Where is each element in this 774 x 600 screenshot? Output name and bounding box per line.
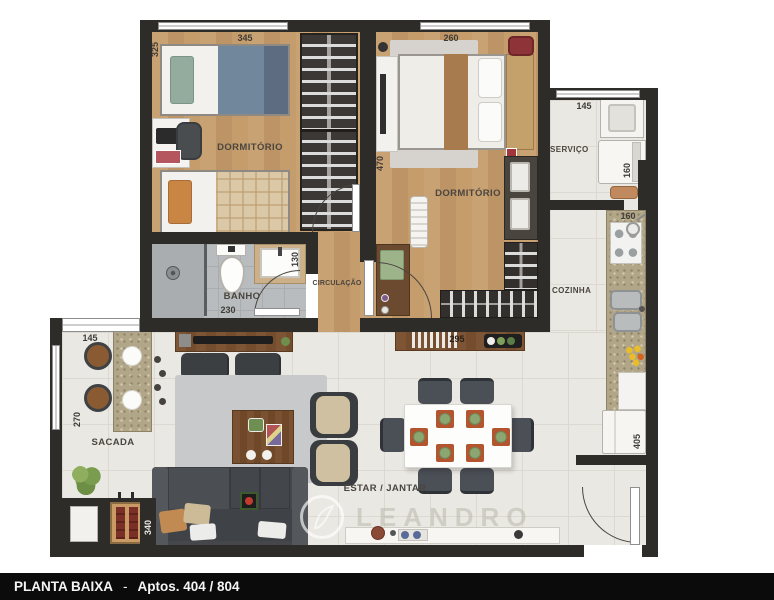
photo-frame-pink	[155, 150, 181, 164]
floor-plan-page: { "title_bar": { "name": "PLANTA BAIXA",…	[0, 0, 774, 600]
game-board-dot	[245, 497, 253, 505]
door-leaf-entry	[630, 487, 640, 545]
fridge-divider	[614, 411, 616, 453]
laundry-tank-basin	[608, 104, 636, 132]
tv-rack-plant	[281, 337, 290, 346]
dim-dormitorio-1-width: 345	[232, 33, 258, 43]
headboard	[506, 54, 534, 150]
room-label-dormitorio-1: DORMITÓRIO	[198, 141, 302, 153]
tray-plate-white	[487, 337, 495, 345]
room-label-servico: SERVIÇO	[550, 144, 594, 154]
bottle-4	[159, 398, 166, 405]
wall-dormitorio-2-bottom	[360, 318, 538, 332]
tray-plate-green-2	[507, 337, 515, 345]
dim-sacada-width: 145	[78, 333, 102, 343]
room-label-cozinha: COZINHA	[552, 285, 598, 295]
room-label-sacada: SACADA	[84, 437, 142, 448]
coffee-table-magazine	[266, 424, 282, 446]
fruit-bowl	[624, 344, 646, 366]
door-leaf-banho	[254, 308, 300, 316]
counter-appliance	[618, 372, 646, 410]
decor-ball-dark	[378, 42, 388, 52]
door-leaf-dormitorio-2	[364, 260, 374, 316]
stool-1	[84, 342, 112, 370]
bed-pillow-2	[478, 102, 502, 142]
sofa-pillow-white-1	[189, 523, 216, 541]
dim-servico-width: 145	[572, 101, 596, 111]
wardrobe-hangers-right	[504, 242, 538, 290]
tray-plate-green-1	[497, 337, 505, 345]
toilet-button	[228, 246, 235, 252]
duvet-blue	[218, 46, 264, 114]
laundry-basket	[610, 186, 638, 199]
sofa-pillow-white-2	[257, 521, 286, 539]
kitchen-sink-basin-2	[613, 312, 642, 332]
apartment-numbers: Aptos. 404 / 804	[138, 579, 240, 594]
bed-runner	[444, 54, 468, 150]
duvet-blue-fold	[264, 46, 288, 114]
wall-duct	[638, 160, 646, 210]
watermark-logo-icon	[300, 495, 344, 539]
dining-chair-left	[380, 418, 406, 452]
bench-plate-blue-1	[401, 531, 409, 539]
dining-chair-bottom-2	[460, 468, 494, 494]
wardrobe-box-2	[510, 198, 530, 230]
plate-6	[495, 431, 507, 443]
dining-chair-top-2	[460, 378, 494, 404]
duvet-plaid	[216, 172, 288, 232]
coffee-table-cup-1	[246, 450, 256, 460]
pouf-red	[508, 36, 534, 56]
tv-rack-box	[179, 334, 191, 347]
plate-3	[439, 447, 451, 459]
entry-threshold	[584, 545, 642, 557]
shower-area	[152, 244, 204, 318]
wall-bedroom-divider	[360, 32, 376, 262]
wardrobe-divider	[300, 129, 358, 132]
wall-kitchen-entry-stub	[576, 455, 646, 465]
dim-estar-height: 340	[143, 514, 153, 540]
sink-tap	[278, 247, 282, 256]
dim-cozinha-width: 160	[616, 211, 640, 221]
dim-banho-width: 230	[215, 305, 241, 315]
bar-plate-1	[122, 346, 142, 366]
plan-title: PLANTA BAIXA	[14, 579, 113, 594]
niche	[70, 506, 98, 542]
pillow-orange	[168, 180, 192, 224]
door-leaf-dormitorio-1	[352, 184, 360, 232]
kitchen-sink-basin-1	[610, 290, 642, 310]
dim-servico-height: 160	[622, 158, 632, 182]
armchair-1-cushion	[316, 396, 350, 434]
wall-banho-bottom	[140, 318, 318, 332]
stool-2	[84, 384, 112, 412]
window-servico	[556, 90, 640, 98]
bar-plate-2	[122, 390, 142, 410]
wardrobe-hangers-bottom	[440, 290, 538, 318]
bottle-2	[159, 370, 166, 377]
plate-2	[439, 413, 451, 425]
room-label-estar-jantar: ESTAR / JANTAR	[342, 483, 428, 494]
wall-bottom-main	[50, 545, 584, 557]
tv-dormitorio-2	[380, 74, 386, 134]
window-dormitorio-1	[158, 22, 288, 30]
wall-servico-cozinha-divider	[550, 200, 624, 210]
room-label-dormitorio-2: DORMITÓRIO	[416, 187, 520, 199]
bench-plate-blue-2	[413, 531, 421, 539]
title-bar: PLANTA BAIXA - Aptos. 404 / 804	[0, 573, 774, 600]
wall-banho-top	[140, 232, 306, 244]
armchair-2-cushion	[316, 444, 350, 482]
coffee-table-plant	[248, 418, 264, 432]
bbq-skewer-1	[116, 507, 125, 539]
dim-banho-height: 130	[290, 246, 300, 272]
plate-5	[469, 447, 481, 459]
wall-bottom-right	[642, 545, 658, 557]
dim-dormitorio-2-height: 470	[375, 150, 385, 176]
coffee-table-cup-2	[262, 450, 272, 460]
ribbed-bench	[410, 196, 428, 248]
sliding-door-sacada	[62, 318, 140, 332]
laptop	[156, 128, 178, 144]
bbq-skewer-2	[129, 507, 138, 539]
tv	[193, 336, 273, 344]
watermark-text: LEANDRO	[356, 502, 546, 532]
window-dormitorio-2	[420, 22, 530, 30]
sofa-cushion-2	[260, 467, 290, 509]
dim-cozinha-height: 405	[632, 428, 642, 454]
plate-4	[469, 413, 481, 425]
bottle-3	[154, 384, 161, 391]
shower-glass	[204, 244, 207, 316]
bottle-1	[154, 356, 161, 363]
plate-1	[413, 431, 425, 443]
bed-pillow-1	[478, 58, 502, 98]
plant	[70, 464, 102, 496]
wall-banho-right-stub	[306, 232, 318, 274]
shower-head	[166, 266, 180, 280]
pillow-teal	[170, 56, 194, 104]
dim-sideboard: 295	[444, 334, 470, 344]
title-separator: -	[123, 579, 128, 594]
dining-chair-top-1	[418, 378, 452, 404]
bbq-handle-1	[118, 492, 121, 501]
kitchen-tap	[639, 306, 645, 312]
room-label-circulacao: CIRCULAÇÃO	[311, 278, 363, 288]
sofa-pillow-cream	[183, 503, 211, 526]
window-sacada	[52, 345, 60, 430]
wall-right	[646, 100, 658, 557]
frying-pan	[626, 222, 640, 236]
wall-left-upper	[140, 20, 152, 332]
wall-dormitorio-2-right	[538, 32, 550, 332]
dim-sacada-height: 270	[72, 406, 82, 432]
bbq-handle-2	[131, 492, 134, 501]
dim-dormitorio-2-width: 260	[438, 33, 464, 43]
